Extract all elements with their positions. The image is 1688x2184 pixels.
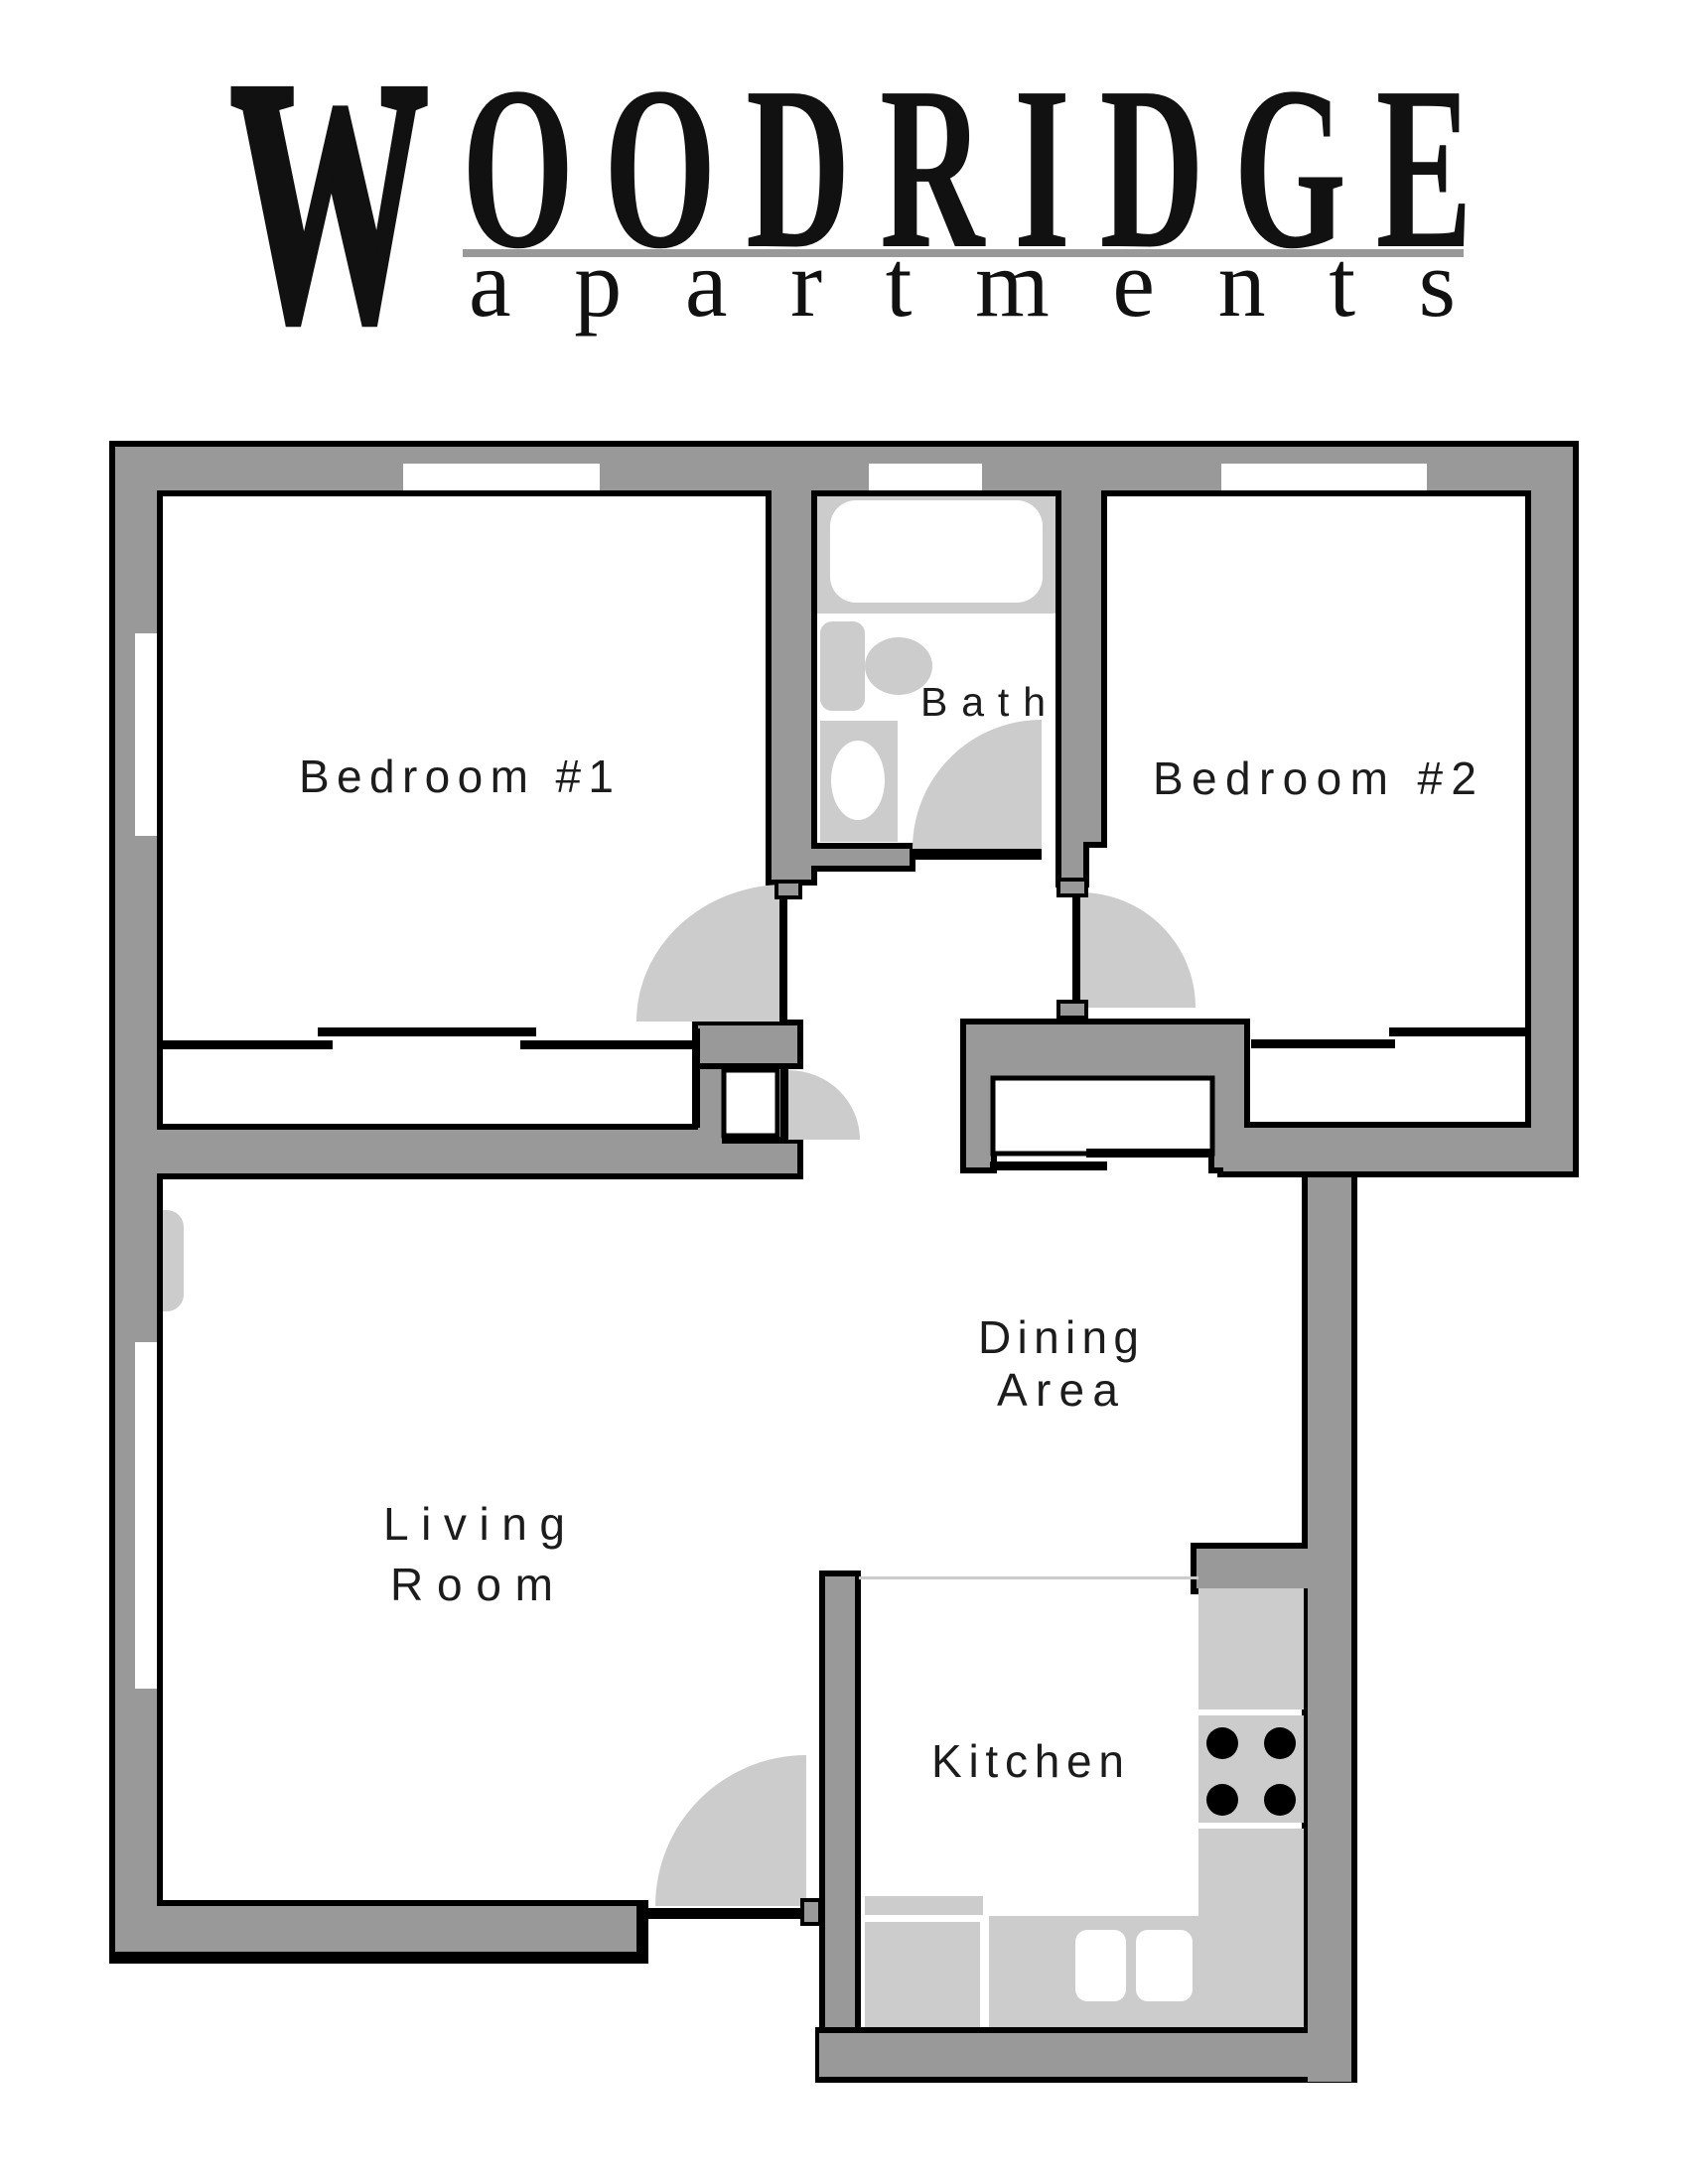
svg-text:Dining: Dining xyxy=(978,1311,1139,1363)
svg-text:Bath: Bath xyxy=(920,679,1046,725)
svg-text:W: W xyxy=(230,8,429,393)
